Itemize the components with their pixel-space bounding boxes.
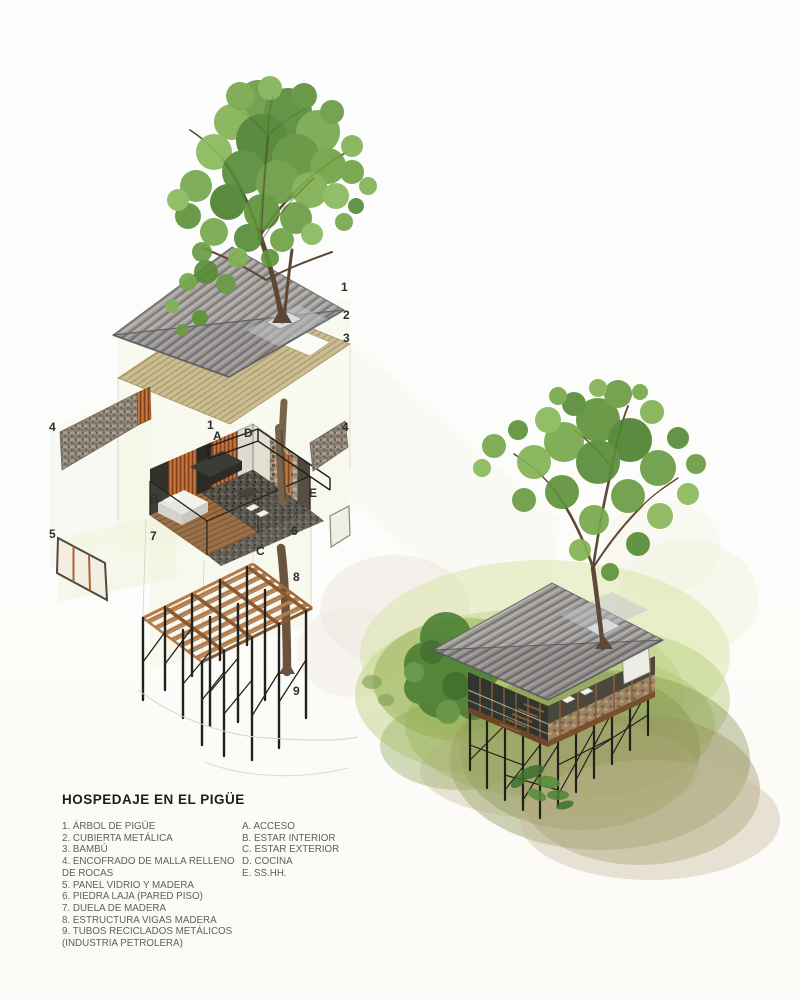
callout-tubes-9: 9 xyxy=(293,684,300,698)
callout-bath-E: E xyxy=(309,486,317,500)
legend-item-6: 6. PIEDRA LAJA (PARED PISO) xyxy=(62,891,240,903)
legend-item-E: E. SS.HH. xyxy=(242,868,392,880)
architectural-exploded-diagram: 1 2 3 1 A D 4 4 B E 5 7 6 C 8 9 HOSPEDAJ… xyxy=(0,0,800,1000)
callout-bamboo-3: 3 xyxy=(343,331,350,345)
callout-exterior-C: C xyxy=(256,544,265,558)
legend-item-A: A. ACCESO xyxy=(242,821,392,833)
callout-metal-roof-2: 2 xyxy=(343,308,350,322)
callout-wood-floor-7: 7 xyxy=(150,529,157,543)
callout-access-A: A xyxy=(213,429,222,443)
legend-item-8: 8. ESTRUCTURA VIGAS MADERA xyxy=(62,915,240,927)
legend-item-9: 9. TUBOS RECICLADOS METÁLICOS (INDUSTRIA… xyxy=(62,926,240,949)
legend-item-1: 1. ÁRBOL DE PIGÜE xyxy=(62,821,240,833)
callout-gabion-right-4: 4 xyxy=(342,420,349,434)
legend-item-D: D. COCINA xyxy=(242,856,392,868)
legend-item-4: 4. ENCOFRADO DE MALLA RELLENO DE ROCAS xyxy=(62,856,240,879)
legend-item-2: 2. CUBIERTA METÁLICA xyxy=(62,833,240,845)
callout-interior-B: B xyxy=(150,492,159,506)
legend-spaces-list: A. ACCESO B. ESTAR INTERIOR C. ESTAR EXT… xyxy=(242,821,392,880)
callout-kitchen-D: D xyxy=(244,426,253,440)
legend-materials-list: 1. ÁRBOL DE PIGÜE 2. CUBIERTA METÁLICA 3… xyxy=(62,821,240,950)
legend-item-5: 5. PANEL VIDRIO Y MADERA xyxy=(62,880,240,892)
legend-item-C: C. ESTAR EXTERIOR xyxy=(242,844,392,856)
callout-glass-panel-5: 5 xyxy=(49,527,56,541)
callout-stone-6: 6 xyxy=(291,524,298,538)
trunk-root-flare xyxy=(279,660,295,674)
callout-gabion-left-4: 4 xyxy=(49,420,56,434)
page-title: HOSPEDAJE EN EL PIGÜE xyxy=(62,792,422,807)
legend-item-B: B. ESTAR INTERIOR xyxy=(242,833,392,845)
legend: HOSPEDAJE EN EL PIGÜE 1. ÁRBOL DE PIGÜE … xyxy=(62,792,422,821)
legend-item-3: 3. BAMBÚ xyxy=(62,844,240,856)
callout-beams-8: 8 xyxy=(293,570,300,584)
legend-item-7: 7. DUELA DE MADERA xyxy=(62,903,240,915)
ground-contours xyxy=(138,690,358,776)
callout-roof-tree-1: 1 xyxy=(341,280,348,294)
